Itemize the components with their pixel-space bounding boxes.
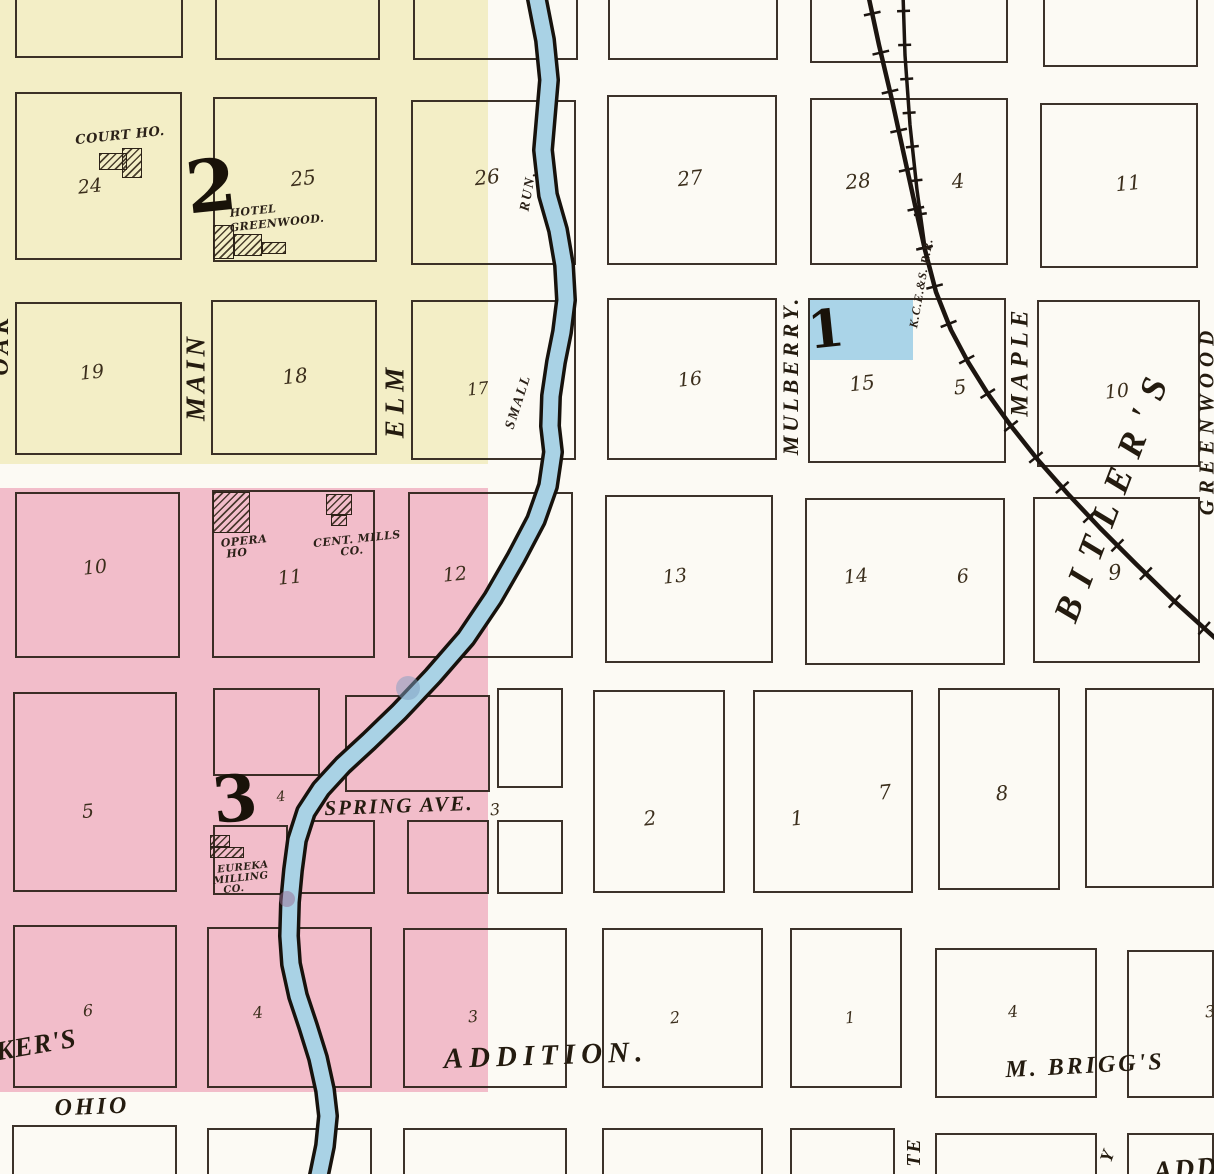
lot-1: 1 [790,807,805,828]
street-oak-partial: OAK [0,314,13,375]
lot-4-sw: 4 [252,1005,264,1022]
lot-26: 26 [473,166,500,189]
lot-11: 11 [277,567,303,588]
street-maple: MAPLE [1008,305,1033,416]
lot-9-e: 9 [1107,562,1122,584]
lot-19: 19 [79,362,105,383]
street-mulberry: MULBERRY. [780,295,802,456]
creek-and-railroad-layer [0,0,1214,1174]
lot-4-s: 4 [276,790,286,805]
street-ohio: OHIO [54,1094,129,1121]
lot-6-s: 6 [82,1003,94,1020]
lot-17: 17 [466,380,489,399]
lot-5-e: 5 [953,376,968,397]
lot-24: 24 [77,176,103,197]
railroad-crosstie [890,129,907,133]
street-greenwood: GREENWOOD [1197,325,1214,516]
lot-6-e: 6 [956,567,970,587]
area-addition: ADDITION. [443,1038,649,1074]
bldg-opera-label-line2: HO [226,546,248,559]
block-number-3: 3 [210,766,261,834]
railroad-siding-crosstie [910,180,923,181]
creek-stain [279,891,295,907]
lot-1-s: 1 [844,1010,856,1027]
lot-7: 7 [878,781,893,802]
lot-15: 15 [848,372,875,395]
street-spring-ave: SPRING AVE. [324,793,474,819]
railroad-siding-crosstie [900,78,913,79]
street-elm: ELM [382,362,409,439]
railroad-siding-crosstie [906,146,919,147]
railroad-siding-crosstie [903,112,916,113]
street-main: MAIN [183,333,210,421]
area-add-partial: ADD [1152,1153,1214,1174]
bldg-cent-mills-label-line2: CO. [340,544,364,557]
lot-8: 8 [995,782,1010,803]
railroad-crosstie [864,12,881,16]
block-number-1: 1 [805,302,846,357]
lot-11-ne: 11 [1114,172,1141,195]
block-number-2: 2 [182,148,239,225]
map-canvas: 2425262728411191817161551010111213146954… [0,0,1214,1174]
lot-2: 2 [643,807,658,828]
railroad-siding-crosstie [914,213,927,215]
lot-3-spring: 3 [489,802,501,819]
lot-2-s: 2 [669,1010,681,1027]
lot-27: 27 [676,167,703,190]
lot-12: 12 [442,564,468,585]
lot-4-ne: 4 [951,170,966,191]
lot-3-se: 3 [1204,1004,1214,1021]
creek-stain [396,676,420,700]
street-te-partial: TE [904,1137,924,1167]
lot-18: 18 [281,365,308,388]
lot-16: 16 [677,369,703,390]
railroad-crosstie [899,168,916,172]
lot-5: 5 [81,802,95,822]
lot-25: 25 [289,167,316,190]
lot-14: 14 [843,566,869,587]
lot-10: 10 [82,557,108,578]
lot-3-s: 3 [467,1009,479,1026]
lot-4-se: 4 [1007,1004,1019,1021]
lot-13: 13 [662,566,688,587]
lot-28: 28 [844,170,871,193]
